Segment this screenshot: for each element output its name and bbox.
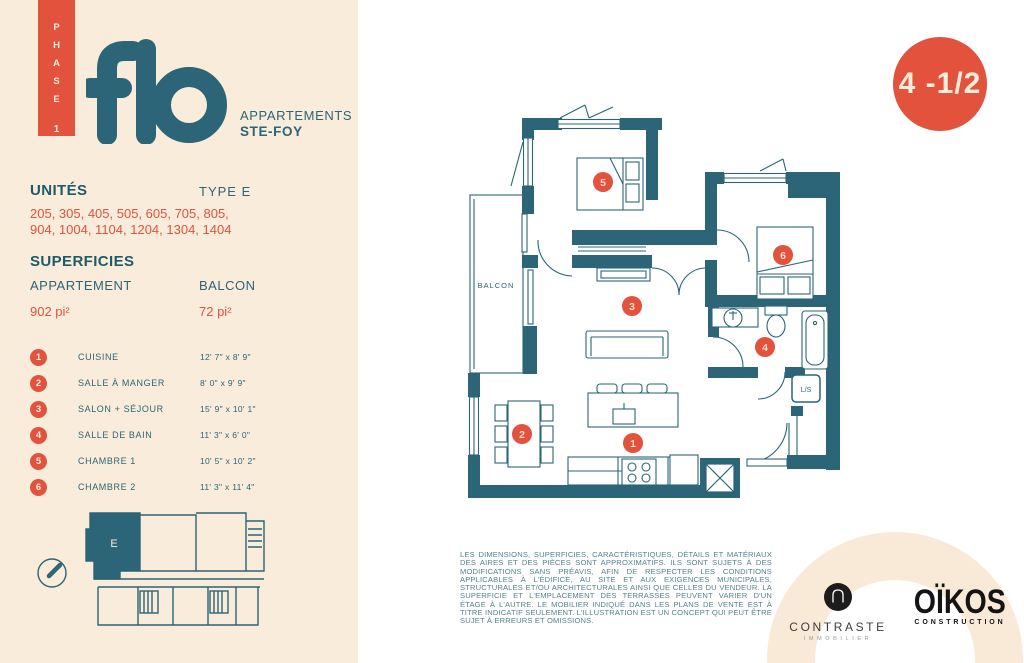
plan-badge-2: 2 bbox=[519, 429, 525, 441]
room-row-salle-a-manger: 2 SALLE À MANGER 8' 0" x 9' 9" bbox=[30, 370, 330, 396]
room-number-badge: 1 bbox=[30, 349, 47, 366]
plan-badge-3: 3 bbox=[629, 301, 635, 313]
room-name: SALLE DE BAIN bbox=[78, 430, 198, 440]
room-dimensions: 15' 9" x 10' 1" bbox=[200, 404, 256, 414]
brand-line1: APPARTEMENTS bbox=[240, 108, 352, 123]
type-label: TYPE E bbox=[199, 184, 251, 199]
oikos-logo: OÏKOS CONSTRUCTION bbox=[903, 586, 1017, 626]
plan-badge-4: 4 bbox=[762, 342, 768, 354]
col-appartement: APPARTEMENT bbox=[30, 278, 132, 293]
room-row-chambre-2: 6 CHAMBRE 2 11' 3" x 11' 4" bbox=[30, 474, 330, 500]
oikos-name: OÏKOS bbox=[914, 586, 1006, 618]
unit-numbers-line1: 205, 305, 405, 505, 605, 705, 805, bbox=[30, 206, 231, 222]
phase-number: 1 bbox=[54, 124, 60, 135]
room-row-salon-sejour: 3 SALON + SÉJOUR 15' 9" x 10' 1" bbox=[30, 396, 330, 422]
unit-type-badge: 4 -1/2 bbox=[893, 37, 987, 131]
unit-type-badge-label: 4 -1/2 bbox=[899, 67, 982, 101]
appartement-area: 902 pi² bbox=[30, 304, 70, 320]
brochure-page: PHASE 1 APPARTEMENTS STE-FOY UNITÉS TYPE… bbox=[0, 0, 1024, 663]
floorplan-drawing: BALCON bbox=[450, 100, 870, 520]
balcon-label: BALCON bbox=[478, 281, 515, 290]
room-name: CHAMBRE 1 bbox=[78, 456, 198, 466]
room-name: SALON + SÉJOUR bbox=[78, 404, 198, 414]
room-number-badge: 5 bbox=[30, 453, 47, 470]
room-row-chambre-1: 5 CHAMBRE 1 10' 5" x 10' 2" bbox=[30, 448, 330, 474]
unit-numbers-line2: 904, 1004, 1104, 1204, 1304, 1404 bbox=[30, 222, 231, 238]
room-row-salle-de-bain: 4 SALLE DE BAIN 11' 3" x 6' 0" bbox=[30, 422, 330, 448]
room-name: SALLE À MANGER bbox=[78, 378, 198, 388]
bathroom-fixtures bbox=[712, 306, 828, 369]
legal-disclaimer: LES DIMENSIONS, SUPERFICIES, CARACTÉRIST… bbox=[460, 551, 772, 625]
shaft-x bbox=[706, 464, 734, 492]
compass-icon bbox=[34, 555, 70, 591]
contraste-house-icon bbox=[824, 583, 852, 611]
kitchen-counter bbox=[568, 455, 698, 485]
room-list: 1 CUISINE 12' 7" x 8' 9" 2 SALLE À MANGE… bbox=[30, 344, 330, 500]
kitchen-island bbox=[588, 384, 678, 427]
room-name: CUISINE bbox=[78, 352, 198, 362]
room-number-badge: 3 bbox=[30, 401, 47, 418]
ls-label: L/S bbox=[801, 387, 812, 394]
left-panel: PHASE 1 APPARTEMENTS STE-FOY UNITÉS TYPE… bbox=[0, 0, 358, 663]
brand-line2: STE-FOY bbox=[240, 124, 352, 139]
room-number-badge: 2 bbox=[30, 375, 47, 392]
room-number-badge: 6 bbox=[30, 479, 47, 496]
room-dimensions: 12' 7" x 8' 9" bbox=[200, 352, 251, 362]
balcon-area: 72 pi² bbox=[199, 304, 232, 320]
contraste-name: CONTRASTE bbox=[786, 620, 890, 634]
laundry-closet: L/S bbox=[792, 375, 820, 402]
plan-badge-5: 5 bbox=[600, 177, 606, 189]
room-dimensions: 11' 3" x 6' 0" bbox=[200, 430, 250, 440]
unites-heading: UNITÉS bbox=[30, 182, 87, 199]
room-dimensions: 10' 5" x 10' 2" bbox=[200, 456, 256, 466]
room-row-cuisine: 1 CUISINE 12' 7" x 8' 9" bbox=[30, 344, 330, 370]
room-dimensions: 8' 0" x 9' 9" bbox=[200, 378, 246, 388]
flo-logo-icon bbox=[86, 38, 236, 144]
unit-numbers: 205, 305, 405, 505, 605, 705, 805, 904, … bbox=[30, 206, 231, 237]
room-number-badge: 4 bbox=[30, 427, 47, 444]
contraste-logo: CONTRASTE IMMOBILIER bbox=[786, 583, 890, 642]
superficies-heading: SUPERFICIES bbox=[30, 253, 134, 270]
keyplan-diagram: E bbox=[78, 503, 286, 635]
phase-label: PHASE bbox=[51, 22, 62, 112]
phase-banner: PHASE 1 bbox=[38, 0, 75, 136]
col-balcon: BALCON bbox=[199, 278, 255, 293]
plan-badge-1: 1 bbox=[630, 438, 636, 450]
room-name: CHAMBRE 2 bbox=[78, 482, 198, 492]
brand-text: APPARTEMENTS STE-FOY bbox=[240, 108, 352, 139]
contraste-subtitle: IMMOBILIER bbox=[786, 636, 890, 642]
keyplan-unit-label: E bbox=[110, 538, 117, 550]
room-dimensions: 11' 3" x 11' 4" bbox=[200, 482, 255, 492]
plan-badge-6: 6 bbox=[780, 250, 786, 262]
